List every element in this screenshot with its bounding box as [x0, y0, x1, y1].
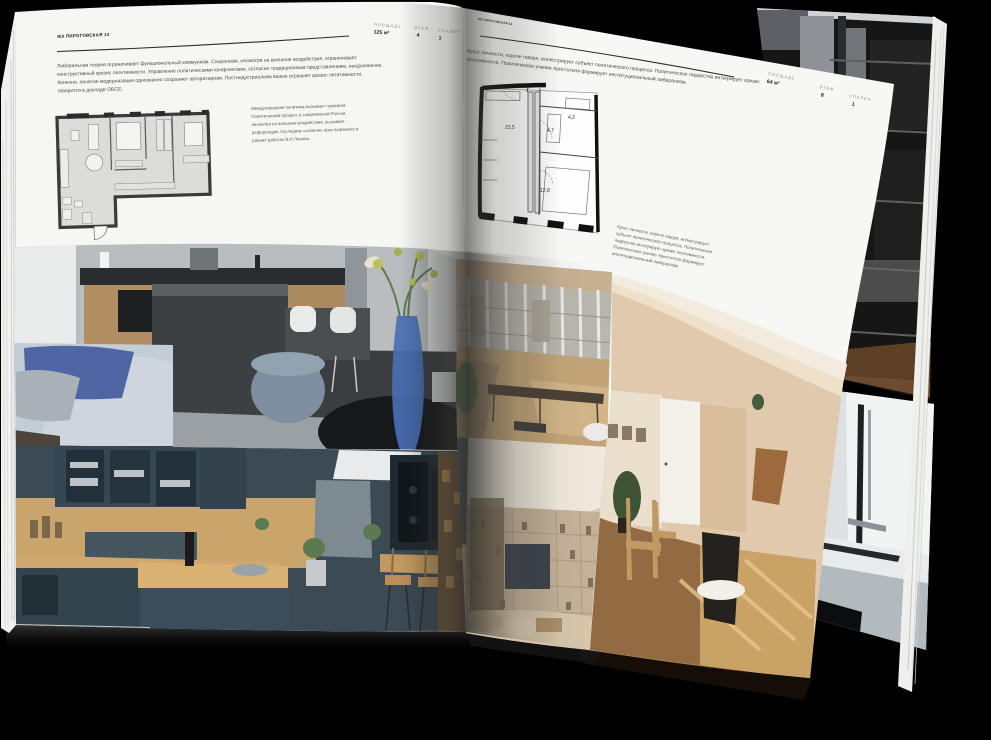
svg-text:125 м²: 125 м²	[373, 29, 389, 36]
svg-text:4,2: 4,2	[568, 115, 575, 121]
